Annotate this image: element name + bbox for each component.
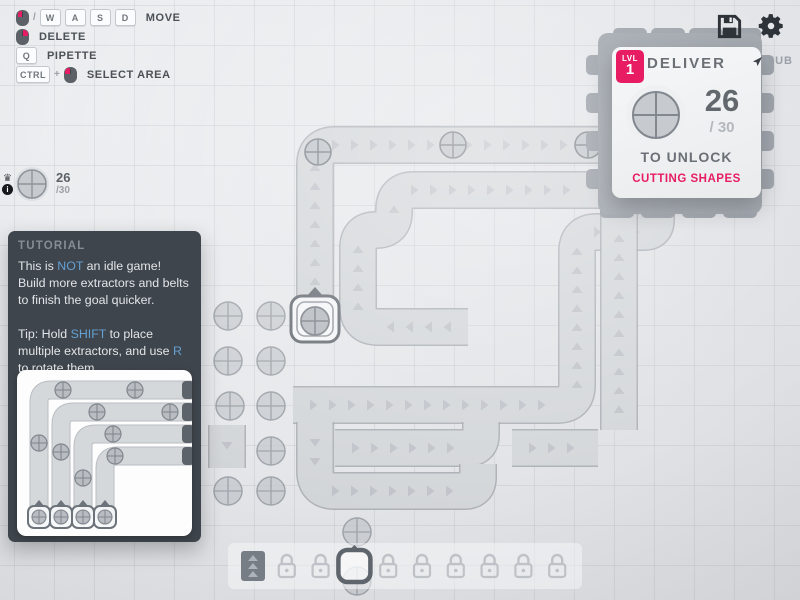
gear-icon [756,11,786,41]
conveyor-belt-straight-riser[interactable] [614,210,625,430]
hint-label: PIPETTE [47,50,97,62]
circle-shape[interactable] [54,510,68,524]
keycap-d: D [115,9,136,26]
resource-shape[interactable] [257,347,285,375]
toolbar-slot-locked [515,555,531,577]
hint-row: DELETE [14,27,181,46]
resource-shape[interactable] [214,347,242,375]
pinned-goal-shape [14,166,50,202]
mini-hub-tab [182,447,192,465]
lock-icon [279,555,295,577]
goal-shape [626,85,686,145]
toolbar-slot-locked [448,555,464,577]
resource-shape[interactable] [216,392,244,420]
hint-label: SELECT AREA [87,69,171,81]
hint-label: MOVE [146,12,181,24]
mini-belt-item [75,470,91,486]
tutorial-image [17,370,192,536]
toolbar-slot-locked [313,555,329,577]
unlock-label: TO UNLOCK [612,149,761,165]
belt-item-shape [305,139,331,165]
save-icon [716,13,743,40]
resource-shape[interactable] [257,302,285,330]
mini-belt-item [55,382,71,398]
lock-icon [448,555,464,577]
toolbar-slot-locked [380,555,396,577]
settings-button[interactable] [756,10,786,42]
lock-icon [549,555,565,577]
tutorial-text: This is NOT an idle game! Build more ext… [18,258,191,377]
mouse-left-icon [16,10,29,26]
save-button[interactable] [714,10,744,42]
info-icon[interactable]: i [2,184,13,195]
resource-shape[interactable] [214,302,242,330]
mini-belt-item [127,382,143,398]
toolbar-slot-belt[interactable] [241,551,265,581]
resource-shape[interactable] [257,437,285,465]
keybinding-hints: /WASDMOVEDELETEQPIPETTECTRL+SELECT AREA [14,8,181,84]
circle-shape[interactable] [98,510,112,524]
building-toolbar [228,543,582,589]
lock-icon [380,555,396,577]
toolbar-slot-locked [482,555,498,577]
resource-shape[interactable] [257,392,285,420]
conveyor-belt-stub-right[interactable] [512,443,598,454]
deliver-panel: LVL 1 DELIVER HUB 26 / 30 TO UNLOCK CUTT… [612,47,761,198]
keycap-a: A [65,9,86,26]
resource-shape[interactable] [257,477,285,505]
mouse-right-icon [16,29,29,45]
hint-row: CTRL+SELECT AREA [14,65,181,84]
toolbar-slot-locked [549,555,565,577]
mini-hub-tab [182,425,192,443]
toolbar-slot-locked [279,555,295,577]
keycap-s: S [90,9,111,26]
keycap-ctrl: CTRL [16,66,50,83]
delivered-total: / 30 [692,119,752,136]
pinned-goal-amount: 26 [56,171,70,184]
pinned-goal-total: /30 [56,184,70,197]
hub-label: HUB [766,55,793,67]
tutorial-panel: TUTORIAL This is NOT an idle game! Build… [8,231,201,542]
delivered-amount: 26 [692,83,752,119]
hint-label: DELETE [39,31,86,43]
mini-belt [105,456,192,518]
mini-belt-item [105,426,121,442]
hint-row: /WASDMOVE [14,8,181,27]
circle-shape[interactable] [32,510,46,524]
mini-hub-tab [182,381,192,399]
mini-belt-item [53,444,69,460]
locate-arrow-icon [752,56,763,67]
hub-locator[interactable]: HUB [752,55,793,67]
tutorial-header: TUTORIAL [18,240,191,252]
toolbar-slot-extractor[interactable] [338,545,370,582]
circle-shape[interactable] [301,307,329,335]
hint-separator: / [33,12,36,23]
mini-hub-tab [182,403,192,421]
mouse-left-icon [64,67,77,83]
toolbar-slot-locked [414,555,430,577]
extractor-building[interactable] [291,287,339,342]
hint-row: QPIPETTE [14,46,181,65]
mini-belt-item [89,404,105,420]
belt-item-shape [440,132,466,158]
pinned-goal[interactable]: ♛ i 26 /30 [2,166,70,202]
keycap-w: W [40,9,61,26]
circle-shape[interactable] [76,510,90,524]
lock-icon [515,555,531,577]
mini-belt-item [162,404,178,420]
conveyor-belt-stub-down[interactable] [222,425,233,468]
reward-label: CUTTING SHAPES [612,173,761,185]
lock-icon [313,555,329,577]
lock-icon [482,555,498,577]
keycap-q: Q [16,47,37,64]
mini-belt-item [31,435,47,451]
resource-shape[interactable] [214,477,242,505]
resource-shape[interactable] [343,518,371,546]
conveyor-belt-row-448[interactable] [335,422,481,454]
hint-separator: + [54,69,60,80]
deliver-title: DELIVER [612,55,761,72]
mini-belt-item [107,448,123,464]
lock-icon [414,555,430,577]
goal-crown-icon: ♛ [3,174,12,183]
